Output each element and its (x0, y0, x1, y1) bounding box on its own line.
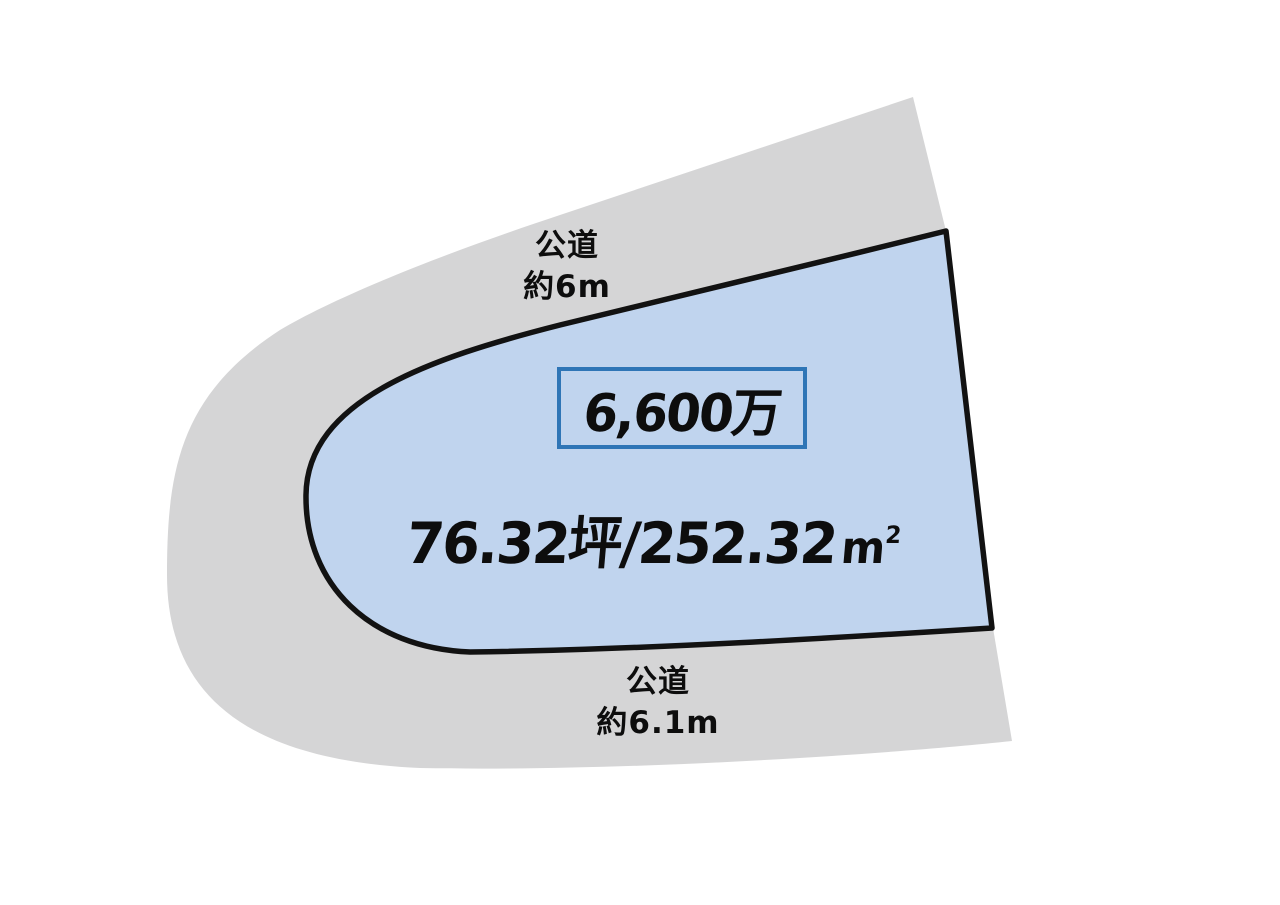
area-label: 76.32坪/252.32m2 (345, 498, 960, 580)
land-plot-diagram: 公道 約6m 6,600万 76.32坪/252.32m2 公道 約6.1m (0, 0, 1280, 905)
price-box: 6,600万 (557, 367, 807, 449)
price-label: 6,600万 (580, 371, 784, 446)
bottom-road-width: 約6.1m (558, 703, 758, 744)
bottom-road-label: 公道 約6.1m (558, 662, 758, 744)
area-value: 76.32坪/252.32 (404, 511, 839, 577)
area-unit: m (839, 523, 886, 574)
top-road-width: 約6m (467, 267, 667, 308)
top-road-label: 公道 約6m (467, 226, 667, 308)
plot-shapes-canvas (0, 0, 1280, 905)
top-road-name: 公道 (467, 226, 667, 267)
area-unit-superscript: 2 (884, 521, 900, 549)
bottom-road-name: 公道 (558, 662, 758, 703)
